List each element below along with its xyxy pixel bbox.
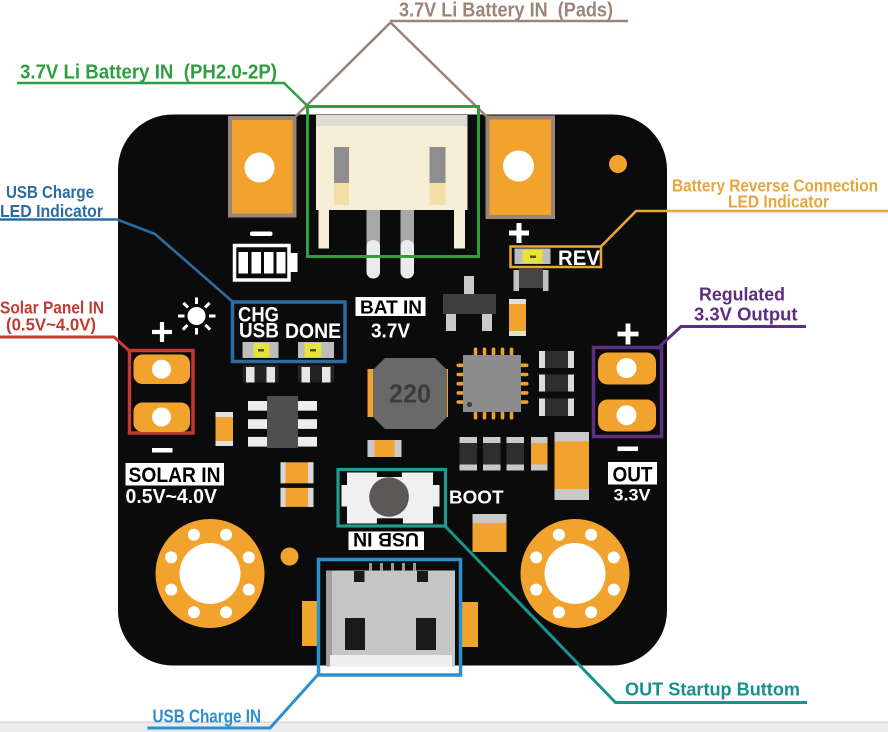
svg-text:REV: REV <box>558 246 601 270</box>
svg-text:USB Charge: USB Charge <box>6 182 94 202</box>
svg-text:OUT Startup Buttom: OUT Startup Buttom <box>625 680 800 700</box>
svg-text:BAT IN: BAT IN <box>360 297 422 318</box>
svg-text:0.5V~4.0V: 0.5V~4.0V <box>126 486 218 508</box>
svg-text:3.7V Li Battery IN (Pads): 3.7V Li Battery IN (Pads) <box>399 0 613 22</box>
svg-text:3.7V Li Battery IN (PH2.0-2P): 3.7V Li Battery IN (PH2.0-2P) <box>20 62 277 84</box>
svg-text:LED Indicator: LED Indicator <box>0 201 103 221</box>
svg-text:Regulated: Regulated <box>699 285 785 305</box>
svg-text:USB: USB <box>239 319 279 343</box>
svg-text:3.3V: 3.3V <box>614 486 652 505</box>
svg-text:3.7V: 3.7V <box>371 320 410 343</box>
svg-text:BOOT: BOOT <box>449 488 504 508</box>
svg-text:USB Charge IN: USB Charge IN <box>153 706 262 727</box>
svg-text:OUT: OUT <box>613 464 653 487</box>
svg-text:DONE: DONE <box>285 319 341 343</box>
svg-text:LED Indicator: LED Indicator <box>728 192 829 212</box>
svg-text:USB IN: USB IN <box>353 528 419 550</box>
svg-text:SOLAR IN: SOLAR IN <box>129 464 221 487</box>
svg-text:3.3V Output: 3.3V Output <box>694 305 798 325</box>
svg-text:(0.5V~4.0V): (0.5V~4.0V) <box>6 315 96 335</box>
svg-text:220: 220 <box>389 379 431 409</box>
